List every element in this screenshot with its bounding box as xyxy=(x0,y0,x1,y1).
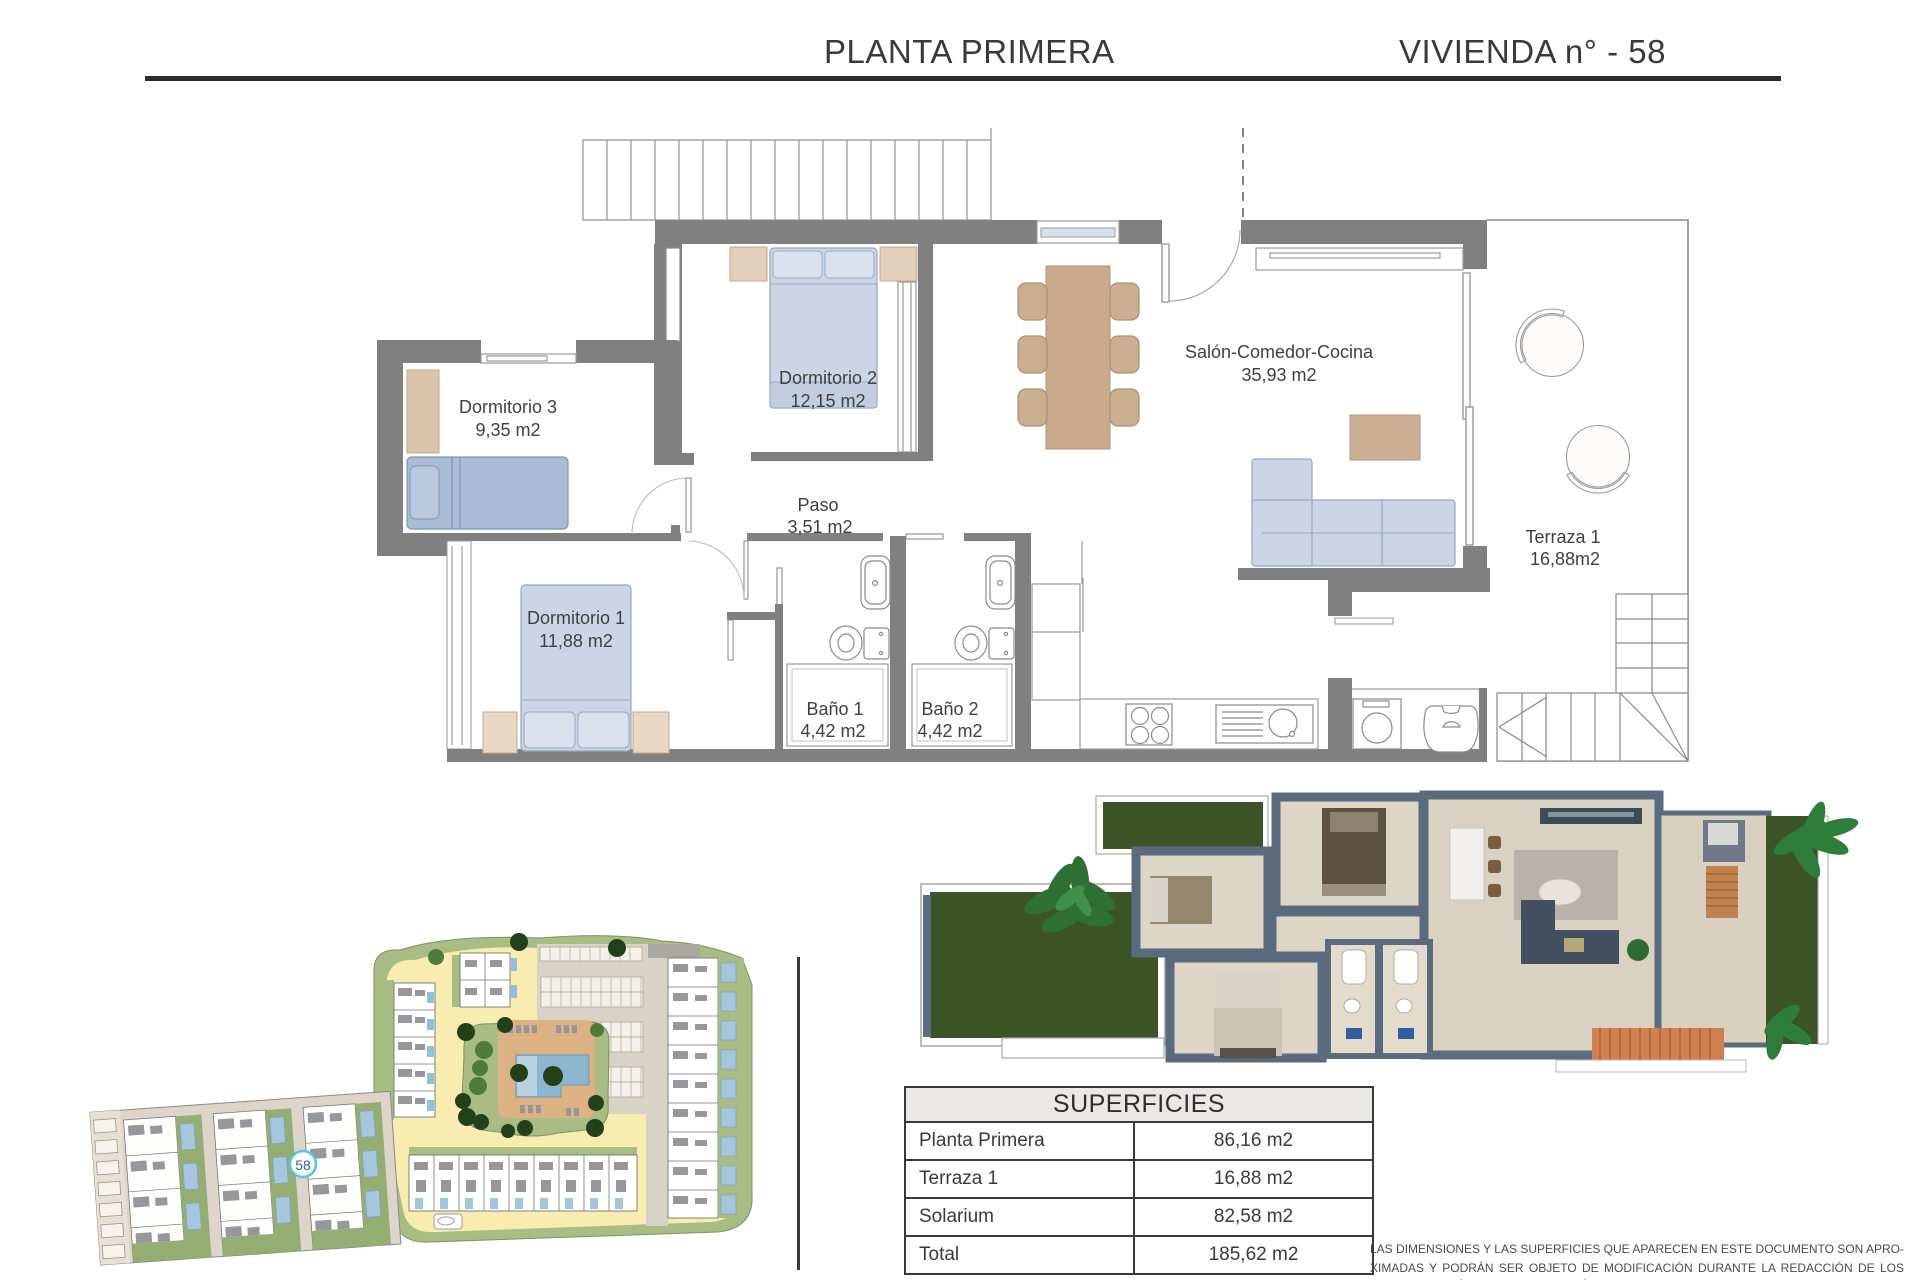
svg-text:58: 58 xyxy=(295,1157,311,1173)
svg-text:12,15 m2: 12,15 m2 xyxy=(790,391,865,411)
svg-text:9,35 m2: 9,35 m2 xyxy=(475,420,540,440)
svg-text:Dormitorio 3: Dormitorio 3 xyxy=(459,397,557,417)
svg-text:Dormitorio 1: Dormitorio 1 xyxy=(527,608,625,628)
svg-text:Terraza 1: Terraza 1 xyxy=(1525,527,1600,547)
svg-text:Paso: Paso xyxy=(797,495,838,515)
svg-text:Baño 2: Baño 2 xyxy=(921,699,978,719)
svg-text:4,42 m2: 4,42 m2 xyxy=(917,721,982,741)
svg-text:16,88m2: 16,88m2 xyxy=(1530,549,1600,569)
svg-text:11,88 m2: 11,88 m2 xyxy=(539,631,613,651)
svg-text:Salón-Comedor-Cocina: Salón-Comedor-Cocina xyxy=(1185,342,1374,362)
svg-text:35,93 m2: 35,93 m2 xyxy=(1241,365,1316,385)
svg-text:4,42 m2: 4,42 m2 xyxy=(800,721,865,741)
svg-text:3,51 m2: 3,51 m2 xyxy=(787,517,852,537)
svg-text:Dormitorio 2: Dormitorio 2 xyxy=(779,368,877,388)
svg-text:Baño 1: Baño 1 xyxy=(806,699,863,719)
